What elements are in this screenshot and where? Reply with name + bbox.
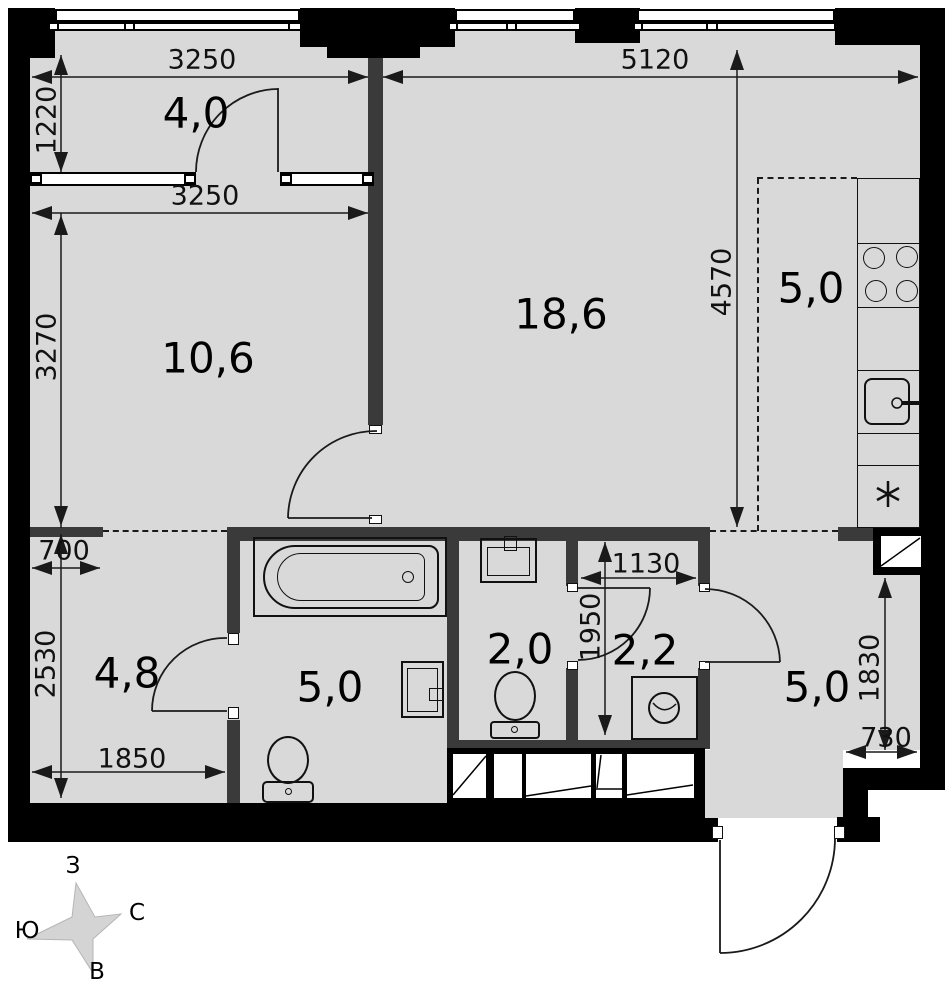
window-frame-mark: [48, 22, 59, 31]
window-loggia-partition-right: [280, 172, 374, 186]
window-frame-mark: [30, 174, 42, 184]
partition-bath-door-upper: [227, 541, 240, 633]
partition-bath-wc: [447, 541, 459, 748]
kitchen-sink-icon: [864, 378, 910, 425]
toilet-button: [511, 726, 518, 733]
wall-corner-top-left: [30, 8, 55, 58]
room-label-hallway: 4,8: [94, 649, 161, 698]
dim-hallway-width: 1850: [98, 744, 167, 775]
room-label-entry: 5,0: [784, 663, 851, 712]
dim-living-width: 5120: [621, 45, 690, 76]
wall-bottom-right-band: [843, 768, 945, 790]
window-frame-mark: [448, 22, 458, 31]
window-loggia-inner: [48, 22, 304, 31]
counter-divider: [857, 243, 920, 244]
room-label-wc: 2,0: [487, 625, 554, 674]
door-jamb-mark: [369, 515, 382, 524]
stove-burner: [896, 246, 918, 268]
counter-divider: [857, 307, 920, 308]
window-living-right-inner: [633, 22, 836, 31]
toilet-button: [285, 788, 292, 795]
partition-wc-closet-lower: [566, 668, 578, 740]
wall-left: [8, 8, 30, 842]
partition-closet-hall-lower: [698, 668, 710, 740]
door-arc-entry: [720, 838, 835, 953]
room-label-bedroom: 10,6: [161, 334, 255, 383]
dim-bedroom-depth: 3270: [32, 313, 63, 382]
window-living-right-outer: [637, 9, 835, 22]
kitchen-counter: [857, 178, 920, 528]
door-jamb-mark: [228, 633, 239, 645]
partition-closet-hall-upper: [698, 541, 710, 586]
window-frame-mark: [706, 22, 718, 31]
door-jamb-mark: [712, 826, 723, 839]
partition-bath-door-lower: [227, 720, 240, 803]
wall-pier-center-step: [327, 45, 420, 58]
room-label-living: 18,6: [514, 290, 608, 339]
room-label-bathroom: 5,0: [297, 663, 364, 712]
window-frame-mark: [633, 22, 643, 31]
door-jamb-mark: [567, 661, 578, 670]
dim-closet-depth: 1950: [576, 593, 607, 662]
wall-right: [920, 8, 945, 768]
window-loggia-outer: [55, 9, 300, 22]
sink-basin: [487, 547, 530, 576]
vent-shaft-icon: [626, 753, 695, 799]
door-jamb-mark: [699, 583, 710, 592]
counter-divider: [857, 465, 920, 466]
room-label-closet: 2,2: [612, 626, 679, 675]
dashed-kitchen-left: [757, 178, 759, 531]
room-label-loggia: 4,0: [163, 89, 230, 138]
compass-west-label: З: [66, 853, 81, 879]
compass-star-icon: [27, 883, 121, 973]
dim-loggia-depth: 1220: [32, 86, 63, 155]
counter-divider: [857, 433, 920, 434]
window-frame-mark: [362, 174, 374, 184]
dim-loggia-width: 3250: [168, 45, 237, 76]
room-label-kitchen: 5,0: [778, 264, 845, 313]
window-living-left-outer: [455, 9, 575, 22]
dim-living-depth: 4570: [707, 248, 738, 317]
stove-burner: [865, 280, 887, 302]
door-jamb-mark: [834, 826, 845, 839]
vent-shaft-icon: [595, 753, 623, 799]
dashed-kitchen-top: [757, 177, 857, 179]
wall-pier-center: [300, 8, 455, 47]
window-frame-mark: [280, 174, 292, 184]
dim-closet-width: 1130: [612, 549, 681, 580]
window-frame-mark: [124, 22, 135, 31]
dashed-opening-hallway: [103, 530, 227, 532]
stove-burner: [896, 280, 918, 302]
dim-entry-width: 730: [860, 723, 912, 754]
door-jamb-mark: [699, 661, 710, 670]
toilet-icon: [494, 671, 536, 721]
dim-entry-depth: 1830: [855, 634, 886, 703]
door-jamb-mark: [369, 425, 382, 434]
compass-north-label: С: [129, 900, 145, 926]
vent-shaft-icon: [493, 753, 523, 799]
sink-tap: [429, 688, 444, 701]
window-frame-mark: [506, 22, 517, 31]
dim-hallway-depth: 2530: [31, 630, 62, 699]
wall-bottom: [8, 803, 705, 842]
bathtub-drain: [402, 571, 414, 583]
compass-south-label: Ю: [15, 918, 40, 944]
compass-east-label: В: [89, 959, 105, 985]
vent-shaft-icon: [452, 753, 487, 799]
door-jamb-mark: [228, 707, 239, 719]
washing-machine-drum: [648, 692, 680, 724]
wall-bottom-right-step: [843, 790, 868, 818]
stove-4-burner-icon: [863, 247, 885, 269]
floor-entry-porch: [705, 750, 843, 818]
door-jamb-mark: [567, 583, 578, 592]
window-frame-mark: [288, 22, 302, 31]
sink-tap: [504, 536, 517, 551]
partition-kitchen-stub: [838, 527, 873, 541]
vent-shaft-icon: [525, 753, 592, 799]
partition-bedroom-living: [368, 58, 383, 425]
vent-shaft-icon: [880, 535, 922, 568]
dashed-opening-entry: [710, 530, 838, 532]
dim-niche-width: 700: [38, 536, 90, 567]
counter-divider: [857, 370, 920, 371]
wall-pier-right: [575, 8, 640, 43]
floor-plan: 4,0 10,6 18,6 5,0 4,8 5,0 2,0 2,2 5,0 32…: [0, 0, 952, 1000]
toilet-icon: [267, 736, 309, 784]
partition-wc-closet-upper: [566, 541, 578, 586]
dim-bedroom-width: 3250: [171, 181, 240, 212]
